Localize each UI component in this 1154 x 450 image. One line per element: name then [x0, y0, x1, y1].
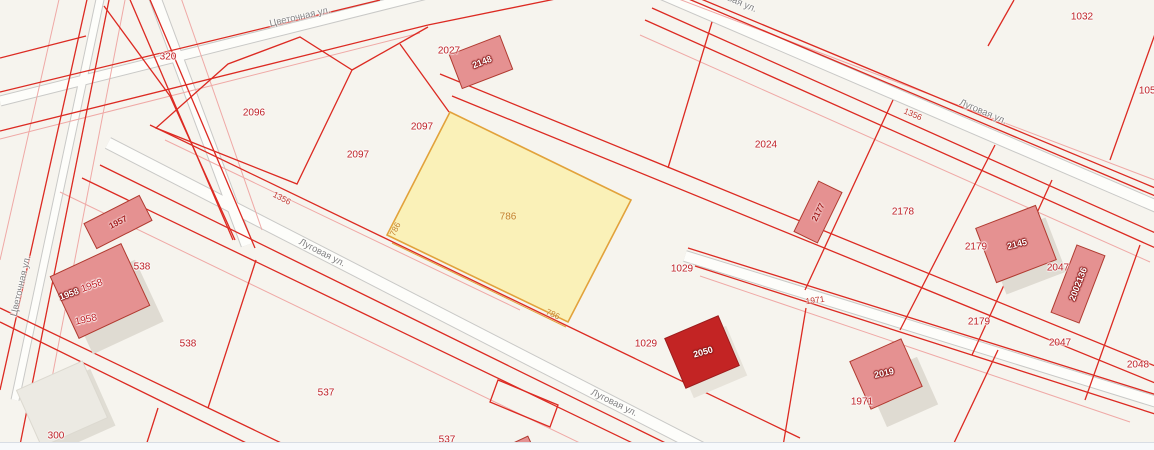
bottom-edge-bar: [0, 442, 1154, 450]
road-tsvetochnaya-upper: [0, 0, 435, 101]
map-canvas: [0, 0, 1154, 450]
building-1957[interactable]: [84, 195, 152, 248]
cadastral-map[interactable]: Цветочная ул.Цветочная ул.Луговая ул.Луг…: [0, 0, 1154, 450]
highlighted-parcel-786[interactable]: [387, 112, 631, 327]
strip-parcel-outline: [490, 380, 558, 427]
building-2148[interactable]: [449, 36, 512, 89]
building-2177[interactable]: [794, 181, 842, 243]
